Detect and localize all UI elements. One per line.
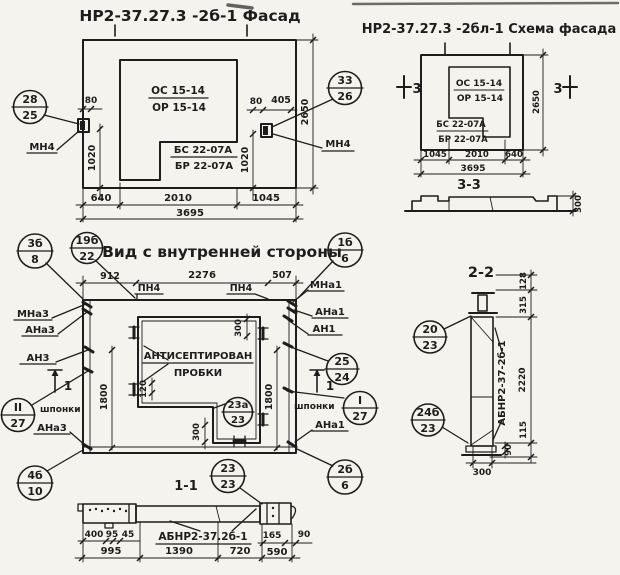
svg-text:23: 23 — [231, 415, 245, 426]
svg-text:22: 22 — [79, 250, 94, 263]
svg-text:28: 28 — [22, 93, 37, 106]
svg-text:1: 1 — [326, 379, 334, 393]
svg-text:300: 300 — [192, 423, 202, 441]
svg-text:1390: 1390 — [165, 546, 193, 557]
svg-text:33: 33 — [337, 74, 352, 87]
svg-text:90: 90 — [504, 444, 514, 456]
svg-text:6: 6 — [341, 252, 349, 265]
svg-text:25: 25 — [334, 355, 349, 368]
schema-dims-bottom: 1045 2010 640 3695 — [414, 140, 530, 177]
anchor-plate-right — [261, 124, 272, 137]
svg-text:1800: 1800 — [99, 383, 110, 410]
section-2-2-label: АБНР2-37-2б-1 — [493, 328, 508, 440]
section-2-2: 2-2 АБНР2-37-2б-1 20 23 24б 23 — [411, 265, 537, 478]
svg-text:507: 507 — [272, 270, 292, 281]
svg-text:115: 115 — [519, 421, 529, 439]
svg-text:1045: 1045 — [252, 193, 280, 204]
svg-text:405: 405 — [271, 95, 291, 106]
svg-text:АНа3: АНа3 — [37, 423, 67, 434]
svg-text:300: 300 — [574, 195, 584, 213]
blueprint-sheet: НР2-37.27.3 -2б-1 Фасад ОС 15-14 ОР 15-1… — [0, 0, 620, 575]
svg-text:640: 640 — [91, 193, 112, 204]
svg-text:I: I — [358, 394, 362, 407]
facade-dim-80-left: 80 — [78, 96, 102, 112]
section-3-3-profile — [412, 196, 557, 211]
svg-text:2276: 2276 — [188, 270, 216, 281]
label-mna3: МНа3 — [14, 304, 86, 320]
label-ana1-bottom: АНа1 — [295, 420, 348, 442]
svg-text:3б: 3б — [27, 237, 43, 250]
svg-text:24б: 24б — [417, 406, 440, 419]
label-shponki-left: шпонки — [40, 405, 81, 415]
schema-window-mark-bottom: ОР 15-14 — [457, 94, 503, 104]
svg-text:315: 315 — [519, 296, 529, 314]
callout-23-23: 23 23 — [210, 460, 262, 505]
svg-text:640: 640 — [505, 150, 523, 160]
inner-dim-1800-left: 1800 — [99, 346, 115, 451]
anchor-label-mn4-right: МН4 — [325, 139, 350, 150]
callout-23a-23: 23а 23 — [214, 398, 254, 427]
svg-text:23: 23 — [220, 462, 235, 475]
svg-text:МНа1: МНа1 — [310, 280, 342, 291]
callout-25-24: 25 24 — [288, 346, 359, 385]
svg-text:АБНР2-37-2б-1: АБНР2-37-2б-1 — [496, 340, 508, 425]
facade-sill-mark-top: БС 22-07А — [174, 145, 232, 156]
svg-text:1020: 1020 — [87, 144, 98, 171]
facade-view: НР2-37.27.3 -2б-1 Фасад ОС 15-14 ОР 15-1… — [12, 7, 363, 222]
svg-text:80: 80 — [85, 96, 98, 106]
section-marker-3-right: 3 — [553, 76, 577, 98]
svg-text:10: 10 — [27, 485, 43, 498]
label-shponki-right: шпонки — [294, 402, 335, 412]
svg-text:19б: 19б — [76, 234, 99, 247]
facade-window-mark-bottom: ОР 15-14 — [152, 102, 206, 114]
inner-dim-1800-right: 1800 — [264, 346, 280, 451]
svg-text:1045: 1045 — [423, 150, 447, 160]
section-1-1-profile — [78, 503, 296, 528]
svg-text:2010: 2010 — [465, 150, 489, 160]
svg-text:1020: 1020 — [240, 146, 251, 173]
svg-text:АН1: АН1 — [312, 324, 335, 335]
svg-text:ПН4: ПН4 — [230, 283, 253, 294]
callout-24b-23: 24б 23 — [411, 404, 468, 443]
svg-text:720: 720 — [230, 546, 251, 557]
svg-text:8: 8 — [31, 253, 39, 266]
facade-dim-1020-right: 1020 — [240, 130, 256, 200]
label-pn4-left: ПН4 — [135, 283, 163, 300]
section-1-1: 1-1 АБНР2-37.2б-1 400 95 45 16 — [75, 479, 312, 562]
svg-text:АБНР2-37.2б-1: АБНР2-37.2б-1 — [158, 531, 247, 543]
svg-text:45: 45 — [122, 530, 135, 540]
facade-dim-80-405-right: 80 405 — [247, 95, 297, 113]
svg-text:2650: 2650 — [300, 98, 311, 125]
svg-text:300: 300 — [473, 468, 492, 478]
svg-text:25: 25 — [22, 109, 37, 122]
svg-text:3695: 3695 — [176, 208, 204, 219]
svg-text:2010: 2010 — [164, 193, 192, 204]
svg-text:27: 27 — [10, 417, 25, 430]
facade-title: НР2-37.27.3 -2б-1 Фасад — [79, 7, 300, 25]
section-3-3-dim-300: 300 — [557, 191, 584, 216]
facade-sill-mark-bottom: БР 22-07А — [175, 161, 233, 172]
facade-dim-2650: 2650 — [296, 34, 318, 194]
schema-dim-2650: 2650 — [523, 49, 548, 156]
svg-text:1б: 1б — [337, 236, 353, 249]
svg-text:АНа1: АНа1 — [315, 307, 345, 318]
section-marker-3-left: 3 — [397, 76, 422, 98]
svg-text:АНа1: АНа1 — [315, 420, 345, 431]
label-an3: АН3 — [20, 350, 88, 364]
svg-text:128: 128 — [519, 272, 529, 290]
anchor-label-mn4-left: МН4 — [29, 142, 54, 153]
schema-window-mark-top: ОС 15-14 — [456, 79, 502, 89]
svg-text:95: 95 — [106, 530, 119, 540]
callout-3b-8: 3б 8 — [17, 234, 83, 299]
svg-text:590: 590 — [267, 547, 288, 558]
svg-text:3: 3 — [412, 82, 421, 97]
inner-dim-120: 120 — [139, 378, 155, 400]
svg-text:26: 26 — [337, 90, 353, 103]
svg-text:2650: 2650 — [532, 90, 542, 114]
svg-text:995: 995 — [101, 546, 122, 557]
svg-text:24: 24 — [334, 371, 350, 384]
svg-text:2б: 2б — [337, 463, 353, 476]
svg-text:1800: 1800 — [264, 383, 275, 410]
section-marker-1-right: 1 — [310, 369, 334, 393]
svg-text:3: 3 — [553, 82, 562, 97]
svg-text:6: 6 — [341, 479, 349, 492]
svg-text:120: 120 — [139, 380, 149, 398]
svg-text:400: 400 — [85, 530, 104, 540]
svg-text:23а: 23а — [228, 400, 249, 411]
drawing-canvas: НР2-37.27.3 -2б-1 Фасад ОС 15-14 ОР 15-1… — [0, 0, 620, 575]
schema-sill-mark-top: БС 22-07А — [436, 120, 486, 130]
svg-text:3695: 3695 — [460, 164, 485, 174]
callout-4b-10: 4б 10 — [17, 450, 83, 500]
label-pn4-right: ПН4 — [227, 283, 268, 299]
section-3-3-title: 3-3 — [457, 178, 481, 193]
svg-text:4б: 4б — [27, 469, 43, 482]
note-probki: ПРОБКИ — [174, 368, 222, 379]
schema-sill-mark-bottom: БР 22-07А — [438, 135, 488, 145]
label-ana1-top: АНа1 — [294, 307, 348, 318]
svg-text:23: 23 — [422, 339, 437, 352]
section-marker-1-left: 1 — [48, 369, 72, 393]
inner-view: Вид с внутренней стороны АНТИСЕПТИРОВАН … — [1, 233, 378, 505]
svg-text:20: 20 — [422, 323, 438, 336]
svg-text:27: 27 — [352, 410, 367, 423]
svg-text:АН3: АН3 — [26, 353, 49, 364]
note-antiseptic: АНТИСЕПТИРОВАН — [144, 351, 253, 362]
svg-text:II: II — [14, 401, 22, 414]
callout-20-23: 20 23 — [413, 316, 471, 353]
svg-text:23: 23 — [420, 422, 435, 435]
section-3-3: 3-3 300 — [405, 178, 584, 216]
section-1-1-label: АБНР2-37.2б-1 — [156, 509, 256, 544]
svg-text:80: 80 — [250, 97, 263, 107]
svg-text:300: 300 — [234, 319, 244, 337]
section-2-2-title: 2-2 — [468, 265, 494, 281]
svg-text:МНа3: МНа3 — [17, 309, 49, 320]
section-1-1-title: 1-1 — [174, 479, 198, 494]
svg-text:165: 165 — [263, 531, 282, 541]
svg-text:2220: 2220 — [518, 367, 528, 392]
inner-view-title: Вид с внутренней стороны — [102, 243, 342, 261]
inner-dim-300-bottom: 300 — [192, 418, 208, 449]
schema-view: НР2-37.27.3 -2бл-1 Схема фасада ОС 15-14… — [362, 22, 617, 177]
schema-title: НР2-37.27.3 -2бл-1 Схема фасада — [362, 22, 617, 37]
label-ana3-bottom: АНа3 — [34, 423, 86, 446]
svg-text:90: 90 — [298, 530, 311, 540]
facade-window-mark-top: ОС 15-14 — [151, 85, 205, 97]
callout-28-25: 28 25 — [12, 91, 79, 125]
svg-text:23: 23 — [220, 478, 235, 491]
svg-text:ПН4: ПН4 — [138, 283, 161, 294]
svg-text:АНа3: АНа3 — [25, 325, 55, 336]
callout-2b-6: 2б 6 — [297, 449, 363, 494]
